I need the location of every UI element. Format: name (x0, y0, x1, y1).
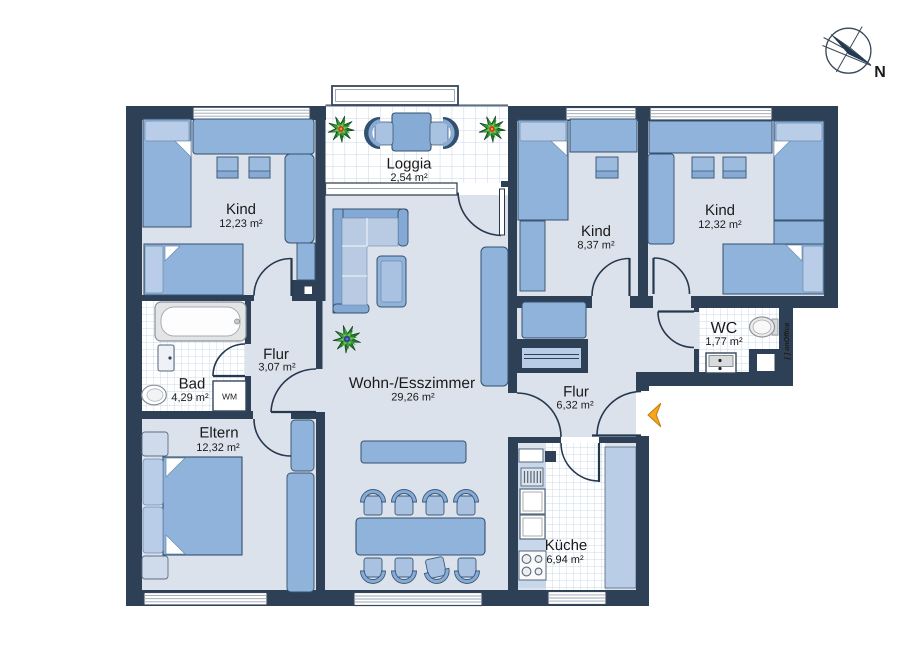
svg-text:29,26 m²: 29,26 m² (391, 392, 435, 404)
svg-text:Kind: Kind (581, 223, 611, 240)
svg-text:1,77 m²: 1,77 m² (705, 336, 743, 348)
svg-text:N: N (874, 64, 886, 81)
svg-text:Kind: Kind (705, 202, 735, 219)
svg-text:3,07 m²: 3,07 m² (258, 362, 296, 374)
svg-text:12,32 m²: 12,32 m² (698, 219, 742, 231)
svg-text:Eltern: Eltern (199, 425, 238, 442)
svg-text:6,94 m²: 6,94 m² (546, 554, 584, 566)
svg-text:8,37 m²: 8,37 m² (577, 240, 615, 252)
svg-text:Bad: Bad (179, 376, 206, 393)
svg-text:Loggia: Loggia (386, 156, 432, 173)
svg-text:12,23 m²: 12,23 m² (219, 218, 263, 230)
svg-text:2,54 m²: 2,54 m² (390, 172, 428, 184)
svg-text:12,32 m²: 12,32 m² (196, 442, 240, 454)
svg-text:Wohn-/Esszimmer: Wohn-/Esszimmer (349, 375, 475, 392)
svg-text:Flur: Flur (563, 384, 589, 401)
svg-text:Küche: Küche (545, 537, 588, 554)
svg-text:4,29 m²: 4,29 m² (171, 392, 209, 404)
svg-text:Flur: Flur (263, 346, 289, 363)
svg-text:WM: WM (222, 392, 237, 402)
svg-text:Kind: Kind (226, 201, 256, 218)
svg-text:[ ] onOffice: [ ] onOffice (783, 322, 791, 360)
svg-text:6,32 m²: 6,32 m² (556, 400, 594, 412)
svg-text:WC: WC (711, 320, 738, 337)
